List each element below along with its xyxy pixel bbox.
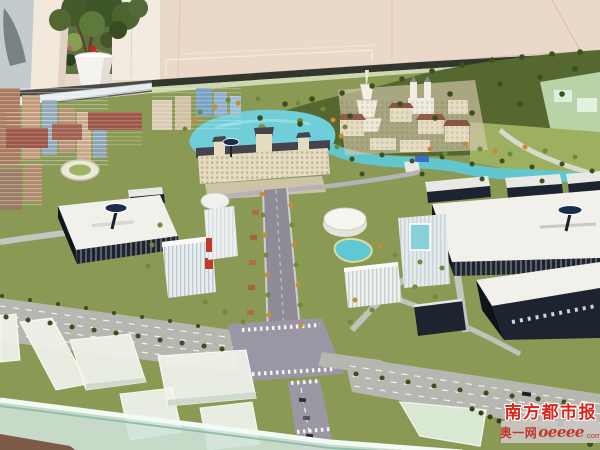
brick-buildings xyxy=(6,112,142,148)
village-buildings xyxy=(338,100,471,152)
town-center xyxy=(338,70,488,162)
model-scene xyxy=(0,0,600,450)
watermark-website: 奥一网oeeee.com xyxy=(501,421,600,443)
office-pool-roof xyxy=(398,214,450,288)
watermark-site-tld: .com xyxy=(585,431,600,440)
watermark-newspaper-name: 南方都市报 xyxy=(505,398,598,423)
round-building xyxy=(323,208,367,237)
watermark-site-prefix: 奥一网 xyxy=(500,424,538,441)
blue-sign xyxy=(415,156,429,162)
round-stadium xyxy=(61,160,99,180)
lagoon-pool xyxy=(335,239,372,262)
scale-model-photo: 南方都市报 奥一网oeeee.com xyxy=(0,0,600,450)
watermark-site-name: oeeee xyxy=(538,423,584,441)
office-columned xyxy=(344,262,402,308)
red-ribbon xyxy=(90,46,96,52)
